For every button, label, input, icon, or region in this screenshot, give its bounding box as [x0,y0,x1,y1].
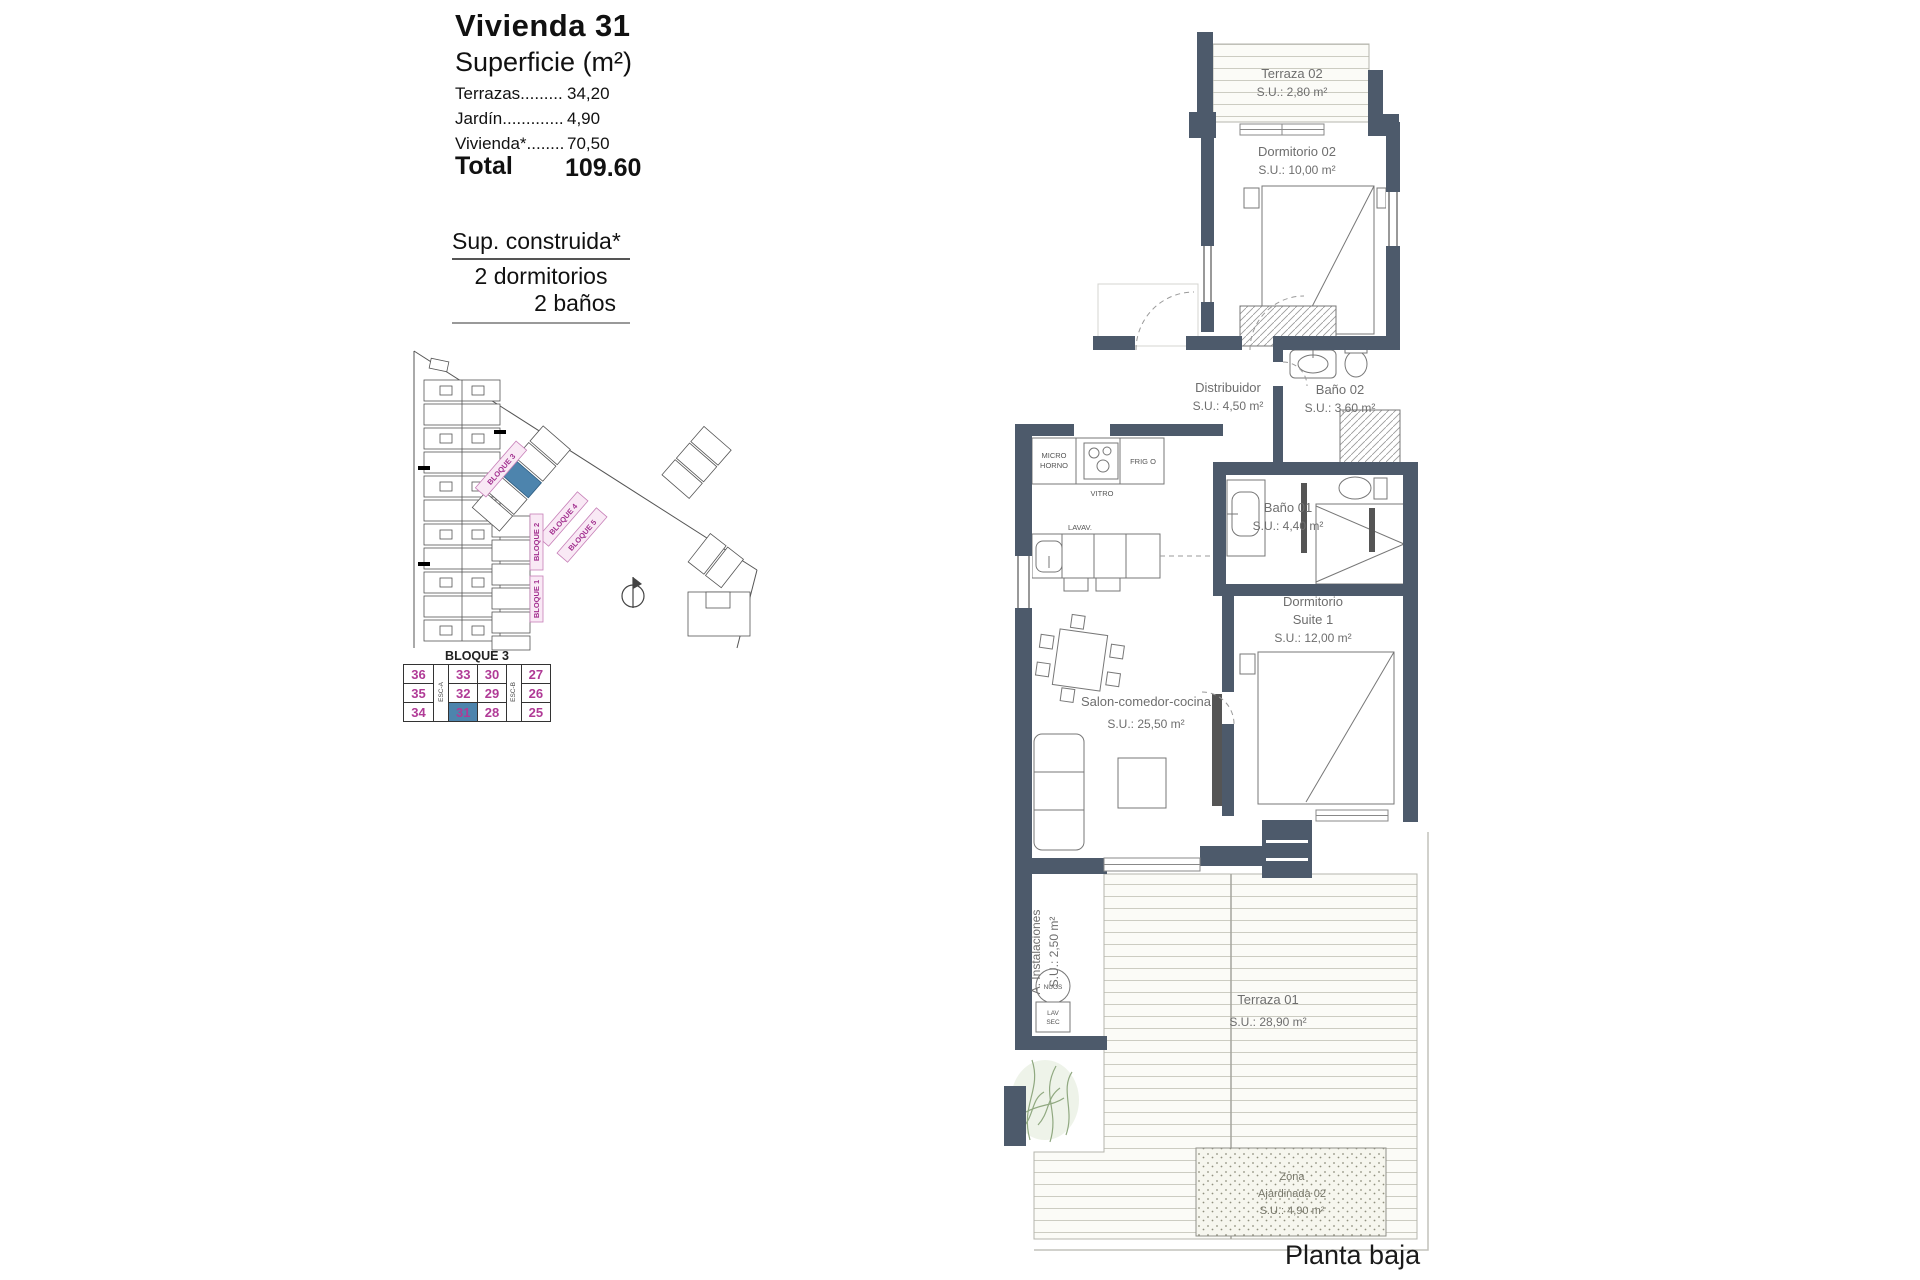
site-units-right-cluster [662,426,750,636]
site-plan: BLOQUE 3 BLOQUE 4 BLOQUE 5 BLOQUE 2 BLOQ… [400,342,772,652]
built-surface-block: Sup. construida* 2 dormitorios 2 baños [452,228,630,324]
washer-dryer [1036,1002,1070,1032]
bloque3-key-table: BLOQUE 3 36 ESC-A 33 30 ESC-B 27 35 32 2… [403,649,551,722]
distribuidor-su: S.U.: 4,50 m² [1193,399,1264,413]
micro-label-1: MICRO [1042,451,1067,460]
terraza02-name: Terraza 02 [1261,66,1322,81]
total-value: 109.60 [565,154,641,183]
instalaciones-name: A. Instalaciones [1029,910,1043,995]
unit-cell: 36 [404,665,434,684]
zona-name2: Ajardinada 02 [1258,1188,1326,1200]
sink-counter [1032,534,1160,591]
unit-cell-highlighted: 31 [449,703,478,722]
shower-bano01 [1316,504,1404,584]
compass-icon [622,577,644,608]
surface-row-label: Jardín............. [455,109,564,128]
terraza02-su: S.U.: 2,80 m² [1257,85,1328,99]
bedrooms-line: 2 dormitorios [452,260,630,290]
stair-b-cell: ESC-B [506,665,521,722]
suite1-name2: Suite 1 [1293,612,1333,627]
coffee-table [1118,758,1166,808]
bloque3-table-title: BLOQUE 3 [403,649,551,663]
sec-label: SEC [1046,1019,1060,1026]
lav-label: LAV [1047,1010,1059,1017]
unit-cell: 25 [521,703,550,722]
site-units-middle-strip [492,516,530,650]
micro-label-2: HORNO [1040,461,1068,470]
bloque4-label: BLOQUE 4 [547,501,579,536]
bano01-name: Baño 01 [1264,500,1312,515]
salon-name: Salon-comedor-cocina [1081,694,1212,709]
fridge-label: FRIG O [1130,457,1156,466]
stair-b-label: ESC-B [510,682,517,702]
unit-cell: 27 [521,665,550,684]
surface-total-row: Total 109.60 [455,152,630,181]
tv-unit [1212,694,1222,806]
dormitorio02-name: Dormitorio 02 [1258,144,1336,159]
unit-cell: 28 [478,703,506,722]
terraza01-name: Terraza 01 [1237,992,1298,1007]
instalaciones-su: S.U.: 2,50 m² [1047,917,1061,988]
surface-row-value: 4,90 [567,109,600,129]
bloque2-label: BLOQUE 2 [532,523,541,561]
bano01-su: S.U.: 4,40 m² [1253,519,1324,533]
sofa [1034,734,1084,850]
bano02-name: Baño 02 [1316,382,1364,397]
bathrooms-line: 2 baños [452,290,630,324]
shower-bano02 [1340,410,1400,466]
stair-a-label: ESC-A [438,682,445,702]
total-label: Total [455,152,513,180]
unit-cell: 29 [478,684,506,703]
unit-cell: 32 [449,684,478,703]
nuos-label: NUOS [1044,984,1063,991]
surface-subtitle: Superficie (m²) [455,47,632,78]
bloque1-label: BLOQUE 1 [532,580,541,618]
unit-cell: 30 [478,665,506,684]
unit-cell: 34 [404,703,434,722]
zona-name1: Zona [1279,1171,1305,1183]
unit-cell: 33 [449,665,478,684]
vitro-label: VITRO [1091,489,1114,498]
surface-row-value: 70,50 [567,134,610,154]
suite1-name1: Dormitorio [1283,594,1343,609]
bed-suite1 [1240,652,1394,804]
salon-su: S.U.: 25,50 m² [1107,717,1184,731]
surface-row-jardin: Jardín............. 4,90 [455,109,630,133]
unit-cell: 35 [404,684,434,703]
terraza01-su: S.U.: 28,90 m² [1229,1015,1306,1029]
bloque5-label: BLOQUE 5 [566,518,598,553]
surface-row-value: 34,20 [567,84,610,104]
step-block [1262,820,1312,878]
built-surface-line: Sup. construida* [452,228,630,260]
terraza02-deck [1213,44,1369,122]
floor-plan: Terraza 02 S.U.: 2,80 m² Dormitorio 02 S… [1000,10,1450,1272]
unit-cell: 26 [521,684,550,703]
surface-row-terrazas: Terrazas......... 34,20 [455,84,630,108]
hob [1084,443,1118,479]
stair-a-cell: ESC-A [434,665,449,722]
bano02-su: S.U.: 3,60 m² [1305,401,1376,415]
surface-row-label: Terrazas......... [455,84,563,103]
surface-row-label: Vivienda*........ [455,134,564,153]
plan-caption: Planta baja [1285,1240,1420,1271]
suite1-su: S.U.: 12,00 m² [1274,631,1351,645]
dormitorio02-su: S.U.: 10,00 m² [1258,163,1335,177]
lavav-label: LAVAV. [1068,523,1092,532]
unit-title: Vivienda 31 [455,8,631,44]
distribuidor-name: Distribuidor [1195,380,1261,395]
zona-su: S.U.: 4,90 m² [1260,1205,1325,1217]
